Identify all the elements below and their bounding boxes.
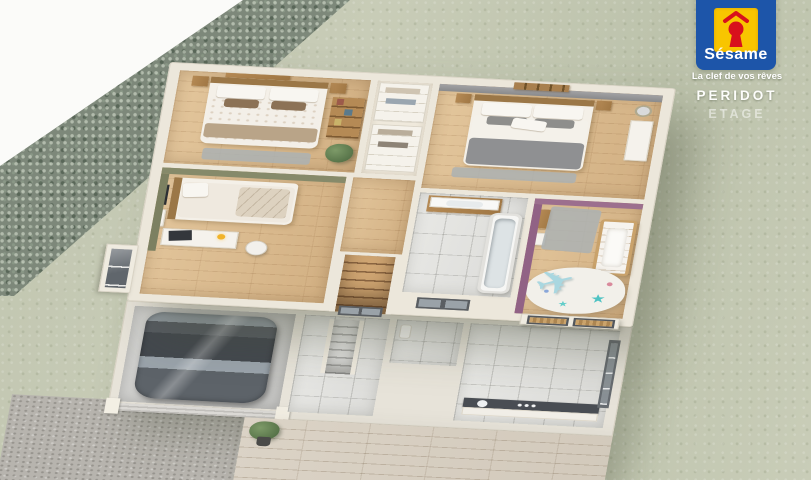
bedroom1-nightstand-left [191,76,209,87]
bedroom1-double-bed [199,77,328,149]
scene-canvas: ✈ ★ ★ maisons [0,0,811,480]
landing-floor [340,177,416,254]
brand-tagline: La clef de vos rêves [664,71,810,82]
master-nightstand-right [595,101,612,111]
floor-label: ETAGE [664,107,810,121]
car-windshield-glint [132,311,279,404]
master-double-bed [462,94,594,171]
book-yellow [334,119,342,126]
bed-gray-blanket [465,137,585,169]
desk-chair [244,240,269,256]
upper-floor: ✈ ★ ★ [127,62,676,327]
bed-pillow-left [216,85,267,100]
bedroom1-rug [201,148,311,165]
terrace-potted-plant [246,421,285,449]
bed-pillow [183,183,209,197]
car [132,311,279,404]
bookshelf [326,97,365,139]
bed-cushion-left [223,98,259,108]
baby-crib [591,219,638,276]
bathroom-floor [402,192,528,297]
master-nightstand-left [455,93,472,103]
bathroom-window [416,297,471,311]
bed-pillow-left [481,102,533,117]
kids-gray-rug [541,206,602,253]
brand-name: Sésame [696,46,776,64]
bed-cushion-right [271,101,307,111]
bathtub [476,212,523,294]
book-blue [344,109,353,116]
desk-monitor [169,230,192,241]
bedroom2-single-bed [167,177,299,225]
master-dresser [623,120,653,161]
dressing-floor [361,81,433,176]
kitchen-jars [516,403,538,409]
plant-pot [256,437,271,447]
bedroom1-potted-plant [324,143,355,163]
star-toy-icon: ★ [590,292,606,306]
star-toy-icon: ★ [558,300,569,309]
bedroom2-floor [140,167,347,303]
play-rug: ✈ ★ ★ [525,267,626,315]
round-mirror [634,105,653,117]
bed-folded-blanket [235,187,291,219]
book-red [336,99,344,106]
bathtub-interior [483,218,516,288]
crib-bedding [601,228,629,268]
logo-card: maisons Sésame [696,0,776,70]
master-bedroom-floor [421,84,663,200]
model-name: PERIDOT [664,88,810,103]
airplane-toy-icon: ✈ [528,260,584,305]
garage-post-left [104,398,121,414]
bedroom1-floor [163,70,371,172]
brand-top-text: maisons [696,0,776,1]
toy-ball-pink [607,282,613,286]
bedroom1-nightstand-right [329,83,347,94]
floorplan-3d: ✈ ★ ★ [83,62,699,480]
